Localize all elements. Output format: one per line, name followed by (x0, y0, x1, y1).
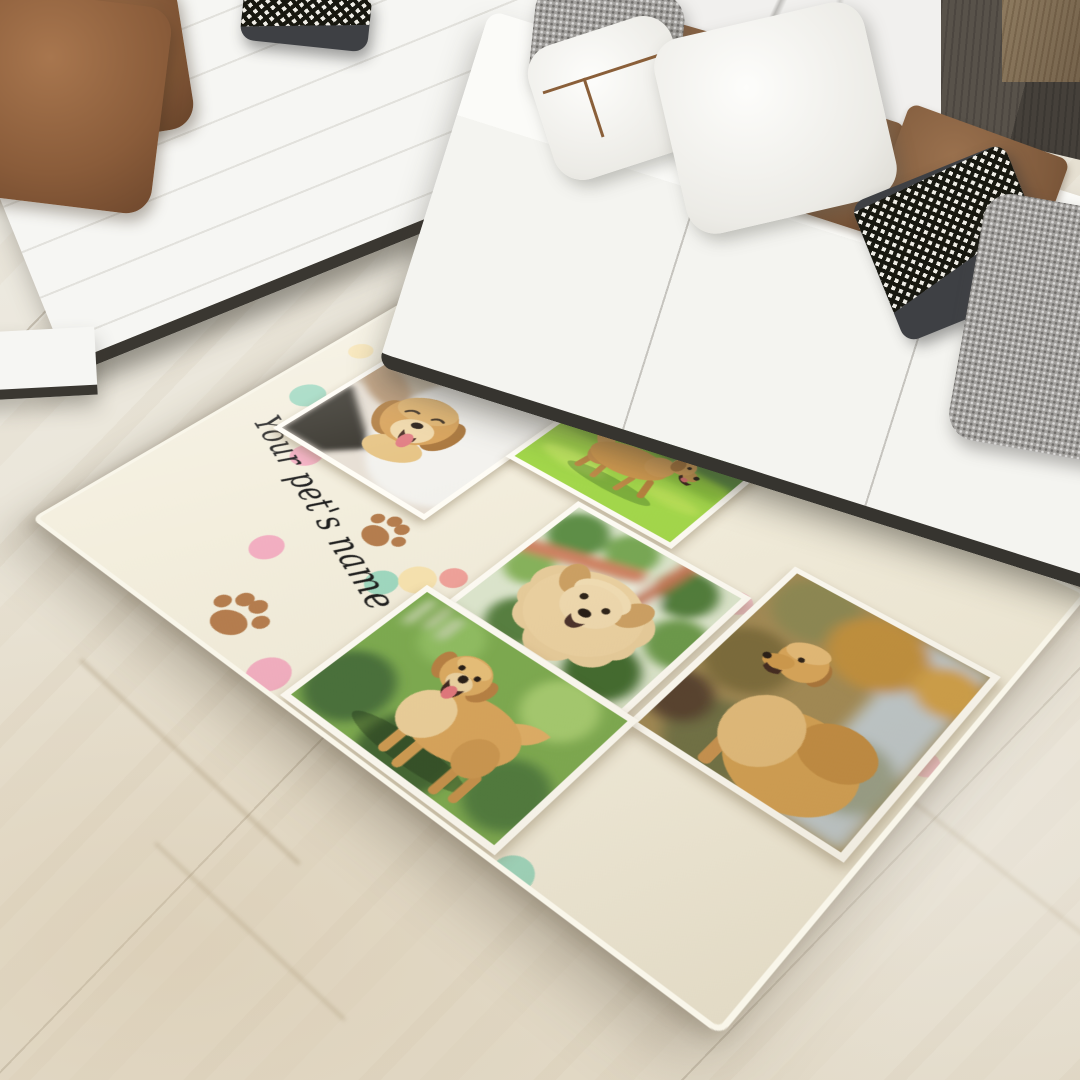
polka-dot-yellow (343, 341, 379, 362)
pillow-trim-line (582, 78, 604, 138)
polka-dot-pink (241, 530, 292, 564)
pillow-trim-line (543, 51, 668, 94)
product-photo-scene: { "scene": { "setting": "living-room wit… (0, 0, 1080, 1080)
wood-cabinet-upper (1002, 0, 1080, 82)
pillow-brown-large (0, 0, 174, 216)
paw-print-icon (189, 580, 289, 649)
sofa-chaise-end (0, 327, 98, 402)
